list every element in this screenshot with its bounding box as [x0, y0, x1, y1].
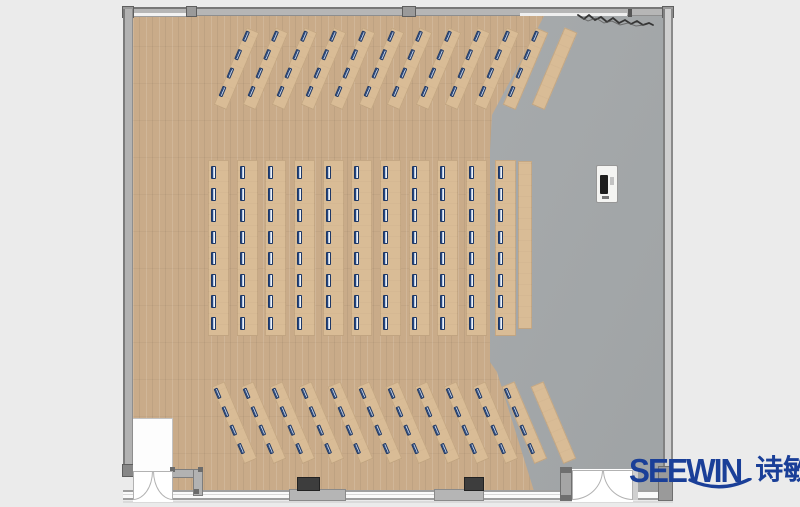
seat: [383, 188, 388, 201]
seat: [498, 252, 503, 265]
seat: [417, 388, 425, 400]
seat: [395, 406, 403, 418]
seat: [211, 274, 216, 287]
seat: [498, 188, 503, 201]
seat: [266, 443, 274, 455]
seat: [527, 443, 535, 455]
seat: [279, 406, 287, 418]
podium[interactable]: [596, 165, 618, 203]
seat: [446, 388, 454, 400]
seat: [329, 30, 337, 42]
seat: [387, 30, 395, 42]
seat: [440, 231, 445, 244]
seat: [354, 252, 359, 265]
seat: [479, 86, 487, 98]
middle-desk-block-strip[interactable]: [518, 161, 532, 329]
seat: [498, 166, 503, 179]
seat: [326, 166, 331, 179]
brand-logo-swoosh: [686, 478, 754, 492]
seat: [301, 388, 309, 400]
seat: [226, 67, 234, 79]
seat: [408, 49, 416, 61]
seat: [469, 274, 474, 287]
seat: [469, 317, 474, 330]
seat: [440, 188, 445, 201]
seat: [237, 443, 245, 455]
middle-desk-block-strip[interactable]: [466, 160, 487, 336]
seat: [326, 295, 331, 308]
seat: [305, 86, 313, 98]
seat: [498, 274, 503, 287]
seat: [498, 443, 506, 455]
seat: [240, 252, 245, 265]
seat: [440, 209, 445, 222]
seat: [240, 209, 245, 222]
seat: [297, 252, 302, 265]
seat: [482, 406, 490, 418]
seat: [453, 406, 461, 418]
seat: [297, 166, 302, 179]
seat: [345, 424, 353, 436]
seat: [255, 67, 263, 79]
seat: [240, 274, 245, 287]
seat: [383, 209, 388, 222]
seat: [258, 424, 266, 436]
seat: [243, 388, 251, 400]
seat: [412, 252, 417, 265]
seat: [412, 166, 417, 179]
seat: [450, 86, 458, 98]
seat: [469, 295, 474, 308]
seat: [330, 388, 338, 400]
seat: [354, 274, 359, 287]
seat: [353, 443, 361, 455]
seat: [469, 188, 474, 201]
seat: [211, 209, 216, 222]
middle-desk-block-strip[interactable]: [437, 160, 458, 336]
seat: [400, 67, 408, 79]
seat: [469, 166, 474, 179]
seat: [424, 406, 432, 418]
seat: [292, 49, 300, 61]
middle-desk-block-strip[interactable]: [409, 160, 430, 336]
seat: [366, 406, 374, 418]
seat: [383, 274, 388, 287]
seat: [498, 231, 503, 244]
seat: [242, 30, 250, 42]
seat: [354, 166, 359, 179]
seat: [240, 188, 245, 201]
seat: [412, 317, 417, 330]
seat: [469, 209, 474, 222]
seat: [440, 166, 445, 179]
seat: [383, 295, 388, 308]
seat: [308, 406, 316, 418]
seat: [498, 295, 503, 308]
seat: [354, 295, 359, 308]
middle-desk-block-strip[interactable]: [237, 160, 258, 336]
seat: [382, 443, 390, 455]
seat: [268, 274, 273, 287]
seat: [440, 317, 445, 330]
seat: [531, 30, 539, 42]
seat: [297, 209, 302, 222]
seat: [295, 443, 303, 455]
seat: [412, 295, 417, 308]
seat: [326, 188, 331, 201]
seat: [350, 49, 358, 61]
seat: [504, 388, 512, 400]
seat: [421, 86, 429, 98]
seat: [432, 424, 440, 436]
seat: [440, 252, 445, 265]
seat: [469, 443, 477, 455]
seat: [519, 424, 527, 436]
desk-layer: [0, 0, 800, 507]
seat: [436, 49, 444, 61]
seat: [211, 252, 216, 265]
floor-plan-canvas: SEEWIN诗敏: [0, 0, 800, 507]
seat: [515, 67, 523, 79]
middle-desk-block-strip[interactable]: [380, 160, 401, 336]
brand-logo: SEEWIN诗敏: [629, 448, 800, 490]
middle-desk-block-strip[interactable]: [208, 160, 229, 336]
seat: [444, 30, 452, 42]
seat: [287, 424, 295, 436]
seat: [354, 231, 359, 244]
seat: [490, 424, 498, 436]
seat: [268, 188, 273, 201]
seat: [508, 86, 516, 98]
seat: [354, 317, 359, 330]
seat: [268, 209, 273, 222]
seat: [326, 252, 331, 265]
seat: [240, 317, 245, 330]
seat: [469, 252, 474, 265]
podium-screen: [600, 175, 608, 194]
seat: [211, 295, 216, 308]
seat: [326, 209, 331, 222]
seat: [374, 424, 382, 436]
seat: [240, 231, 245, 244]
middle-desk-block-strip[interactable]: [495, 160, 516, 336]
seat: [324, 443, 332, 455]
seat: [326, 317, 331, 330]
seat: [440, 274, 445, 287]
seat: [371, 67, 379, 79]
seat: [334, 86, 342, 98]
seat: [415, 30, 423, 42]
seat: [268, 231, 273, 244]
seat: [234, 49, 242, 61]
middle-desk-block-strip[interactable]: [323, 160, 344, 336]
seat: [219, 86, 227, 98]
seat: [297, 231, 302, 244]
seat: [268, 295, 273, 308]
seat: [276, 86, 284, 98]
seat: [211, 317, 216, 330]
seat: [342, 67, 350, 79]
seat: [498, 209, 503, 222]
seat: [284, 67, 292, 79]
seat: [326, 231, 331, 244]
seat: [272, 388, 280, 400]
seat: [429, 67, 437, 79]
seat: [383, 317, 388, 330]
seat: [297, 274, 302, 287]
seat: [337, 406, 345, 418]
seat: [440, 443, 448, 455]
seat: [247, 86, 255, 98]
seat: [297, 188, 302, 201]
seat: [354, 188, 359, 201]
seat: [268, 166, 273, 179]
seat: [392, 86, 400, 98]
seat: [358, 30, 366, 42]
seat: [359, 388, 367, 400]
seat: [403, 424, 411, 436]
seat: [383, 231, 388, 244]
seat: [469, 231, 474, 244]
podium-panel: [610, 177, 614, 185]
seat: [411, 443, 419, 455]
seat: [268, 317, 273, 330]
seat: [240, 295, 245, 308]
seat: [498, 317, 503, 330]
seat: [268, 252, 273, 265]
seat: [211, 166, 216, 179]
seat: [250, 406, 258, 418]
seat: [412, 274, 417, 287]
seat: [440, 295, 445, 308]
seat: [297, 295, 302, 308]
podium-base: [602, 196, 609, 199]
seat: [316, 424, 324, 436]
seat: [229, 424, 237, 436]
seat: [211, 188, 216, 201]
seat: [354, 209, 359, 222]
seat: [300, 30, 308, 42]
seat: [475, 388, 483, 400]
seat: [326, 274, 331, 287]
seat: [383, 166, 388, 179]
middle-desk-block-strip[interactable]: [294, 160, 315, 336]
seat: [486, 67, 494, 79]
seat: [297, 317, 302, 330]
seat: [214, 388, 222, 400]
seat: [240, 166, 245, 179]
seat: [271, 30, 279, 42]
seat: [458, 67, 466, 79]
seat: [461, 424, 469, 436]
seat: [313, 67, 321, 79]
seat: [465, 49, 473, 61]
middle-desk-block-strip[interactable]: [351, 160, 372, 336]
middle-desk-block-strip[interactable]: [265, 160, 286, 336]
seat: [383, 252, 388, 265]
seat: [363, 86, 371, 98]
seat: [388, 388, 396, 400]
seat: [412, 231, 417, 244]
brand-logo-cjk: 诗敏: [755, 448, 800, 488]
seat: [263, 49, 271, 61]
seat: [211, 231, 216, 244]
seat: [321, 49, 329, 61]
seat: [523, 49, 531, 61]
seat: [412, 188, 417, 201]
seat: [412, 209, 417, 222]
seat: [473, 30, 481, 42]
seat: [494, 49, 502, 61]
seat: [502, 30, 510, 42]
seat: [511, 406, 519, 418]
seat: [379, 49, 387, 61]
seat: [221, 406, 229, 418]
